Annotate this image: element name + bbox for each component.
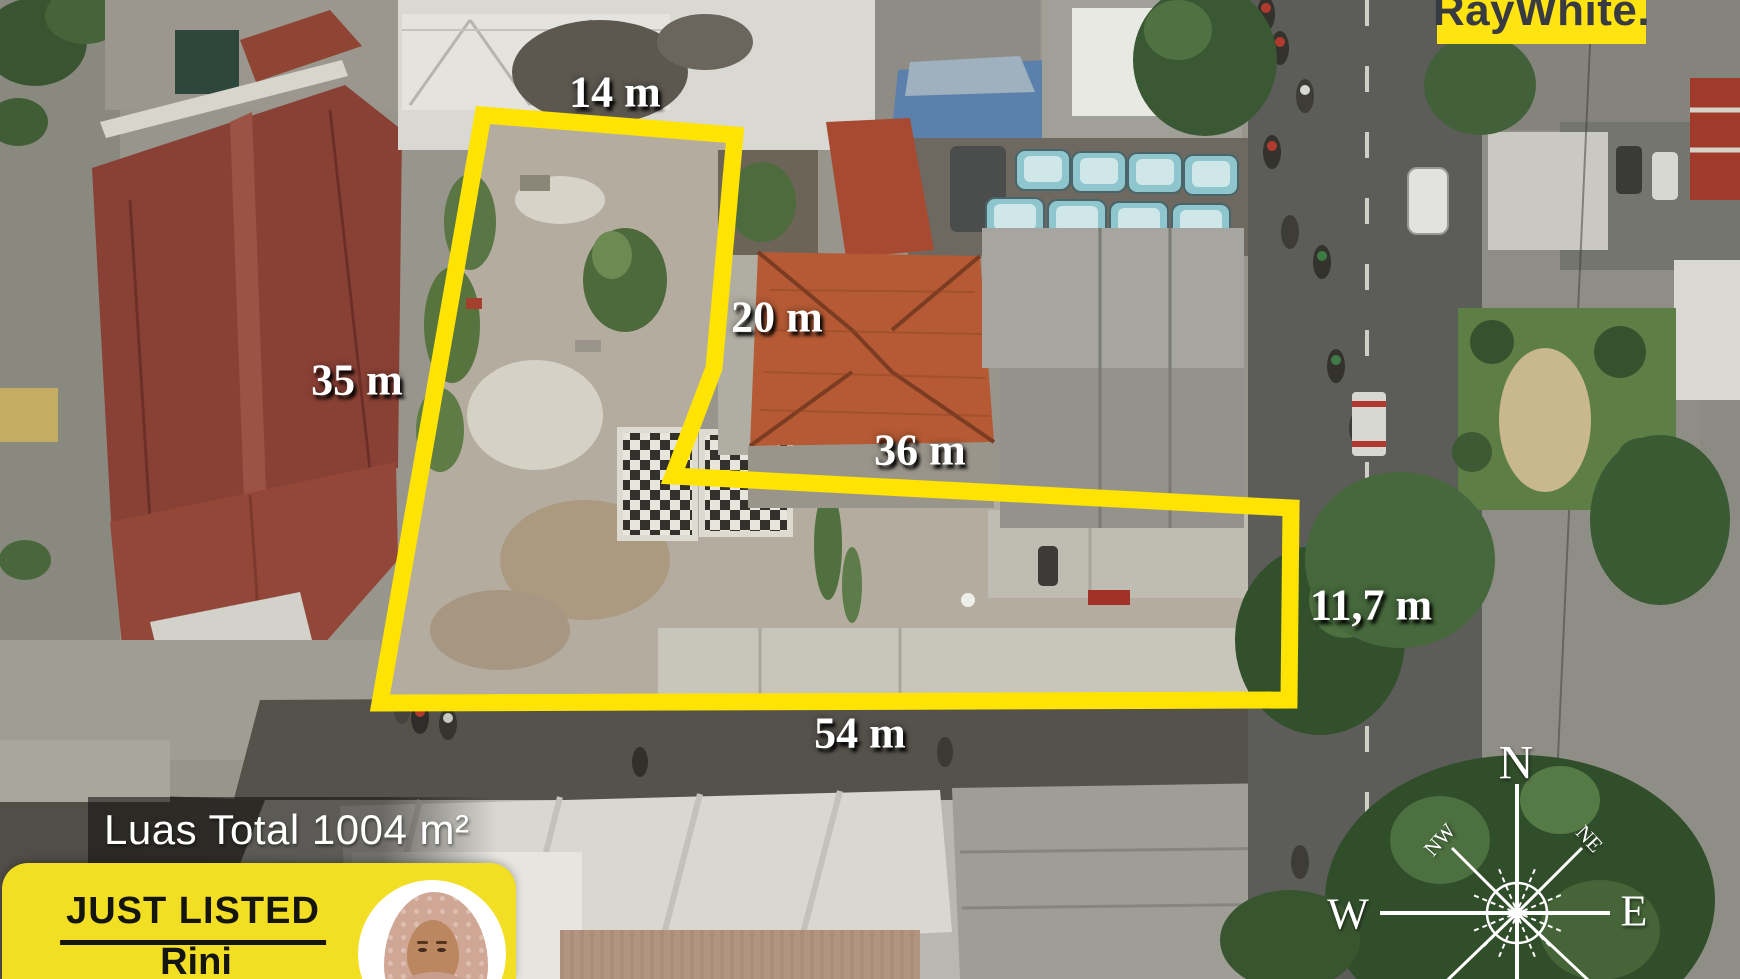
compass-east: E xyxy=(1621,886,1648,937)
measurement-bottom: 54 m xyxy=(814,708,906,759)
compass-north: N xyxy=(1499,736,1534,791)
compass-west: W xyxy=(1327,889,1369,940)
raywhite-logo: RayWhite. xyxy=(1437,0,1646,44)
plot-boundary xyxy=(380,115,1291,703)
agent-name: Rini xyxy=(160,941,232,979)
measurement-left: 35 m xyxy=(311,355,403,406)
measurement-right: 11,7 m xyxy=(1310,580,1432,631)
measurement-middle: 36 m xyxy=(874,425,966,476)
measurement-upper-right: 20 m xyxy=(731,292,823,343)
total-area-label: Luas Total 1004 m² xyxy=(104,806,469,854)
total-area-bar: Luas Total 1004 m² xyxy=(88,797,496,863)
listing-flyer: 14 m 20 m 35 m 36 m 11,7 m 54 m Luas Tot… xyxy=(0,0,1740,979)
just-listed-label: JUST LISTED xyxy=(60,890,326,945)
raywhite-logo-text: RayWhite. xyxy=(1433,0,1650,36)
compass-rose xyxy=(1380,784,1610,979)
measurement-top: 14 m xyxy=(569,67,661,118)
